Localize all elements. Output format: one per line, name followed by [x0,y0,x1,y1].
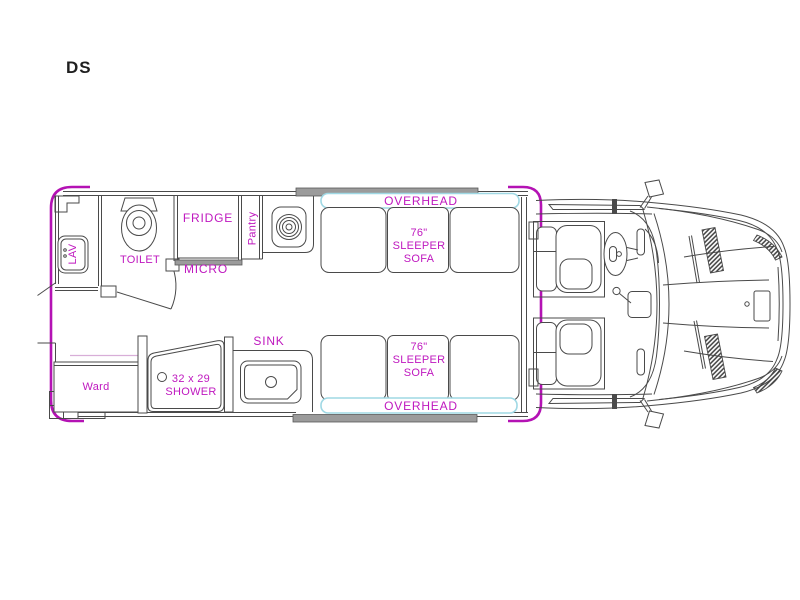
side-rail-bottom [536,394,652,409]
toilet-label: TOILET [120,254,160,266]
sofa-top-label-line1: 76" [410,227,427,239]
lav-label: LAV [67,243,79,264]
cooktop-burner [272,207,306,247]
shower-label-line2: SHOWER [165,386,216,398]
sofa-section [321,208,386,273]
dashboard [628,211,660,397]
front-bumper [754,267,779,341]
ward-label: Ward [82,381,109,393]
sink-basin [241,361,302,403]
side-mirror-bottom [640,400,664,429]
bathroom-door [101,259,179,309]
plan-code-label: DS [66,58,92,77]
pantry-label: Pantry [247,212,259,246]
shower-label-line1: 32 x 29 [172,373,210,385]
floorplan-drawing: DS [0,0,800,600]
fridge-label: FRIDGE [183,211,233,225]
overhead-bottom-label: OVERHEAD [384,399,458,413]
sofa-top-label-line2: SLEEPER [393,240,446,252]
driver-seat [534,222,605,298]
windshield [643,210,669,398]
hood-vent-top [702,228,724,274]
side-rail-top [536,199,652,214]
sofa-bottom-label-line1: 76" [410,341,427,353]
rear-door-line [38,283,57,296]
kitchen-counter [263,196,314,253]
sofa-bottom-label-line3: SOFA [404,367,435,379]
sofa-bottom-label-line2: SLEEPER [393,354,446,366]
sink-label: SINK [253,334,284,348]
overhead-top-label: OVERHEAD [384,194,458,208]
side-mirror-top [640,180,664,209]
passenger-seat [534,318,605,389]
sofa-top-label-line3: SOFA [404,253,435,265]
sink-counter [233,351,313,413]
micro-label: MICRO [184,262,228,276]
wiper [689,236,700,284]
bottom-wall-panel [293,415,477,423]
toilet-fixture [121,198,157,251]
van-cab [529,180,790,428]
sofa-section [321,336,386,401]
front-bumper-plate [754,291,770,321]
floorplan-canvas: DS [0,0,800,600]
sofa-section [450,208,519,273]
steering-wheel [604,233,638,276]
fridge-cabinet [174,196,242,265]
wiper [694,321,706,370]
hood-emblem [745,302,749,306]
sofa-section [450,336,519,401]
lav-cabinet [55,196,102,291]
